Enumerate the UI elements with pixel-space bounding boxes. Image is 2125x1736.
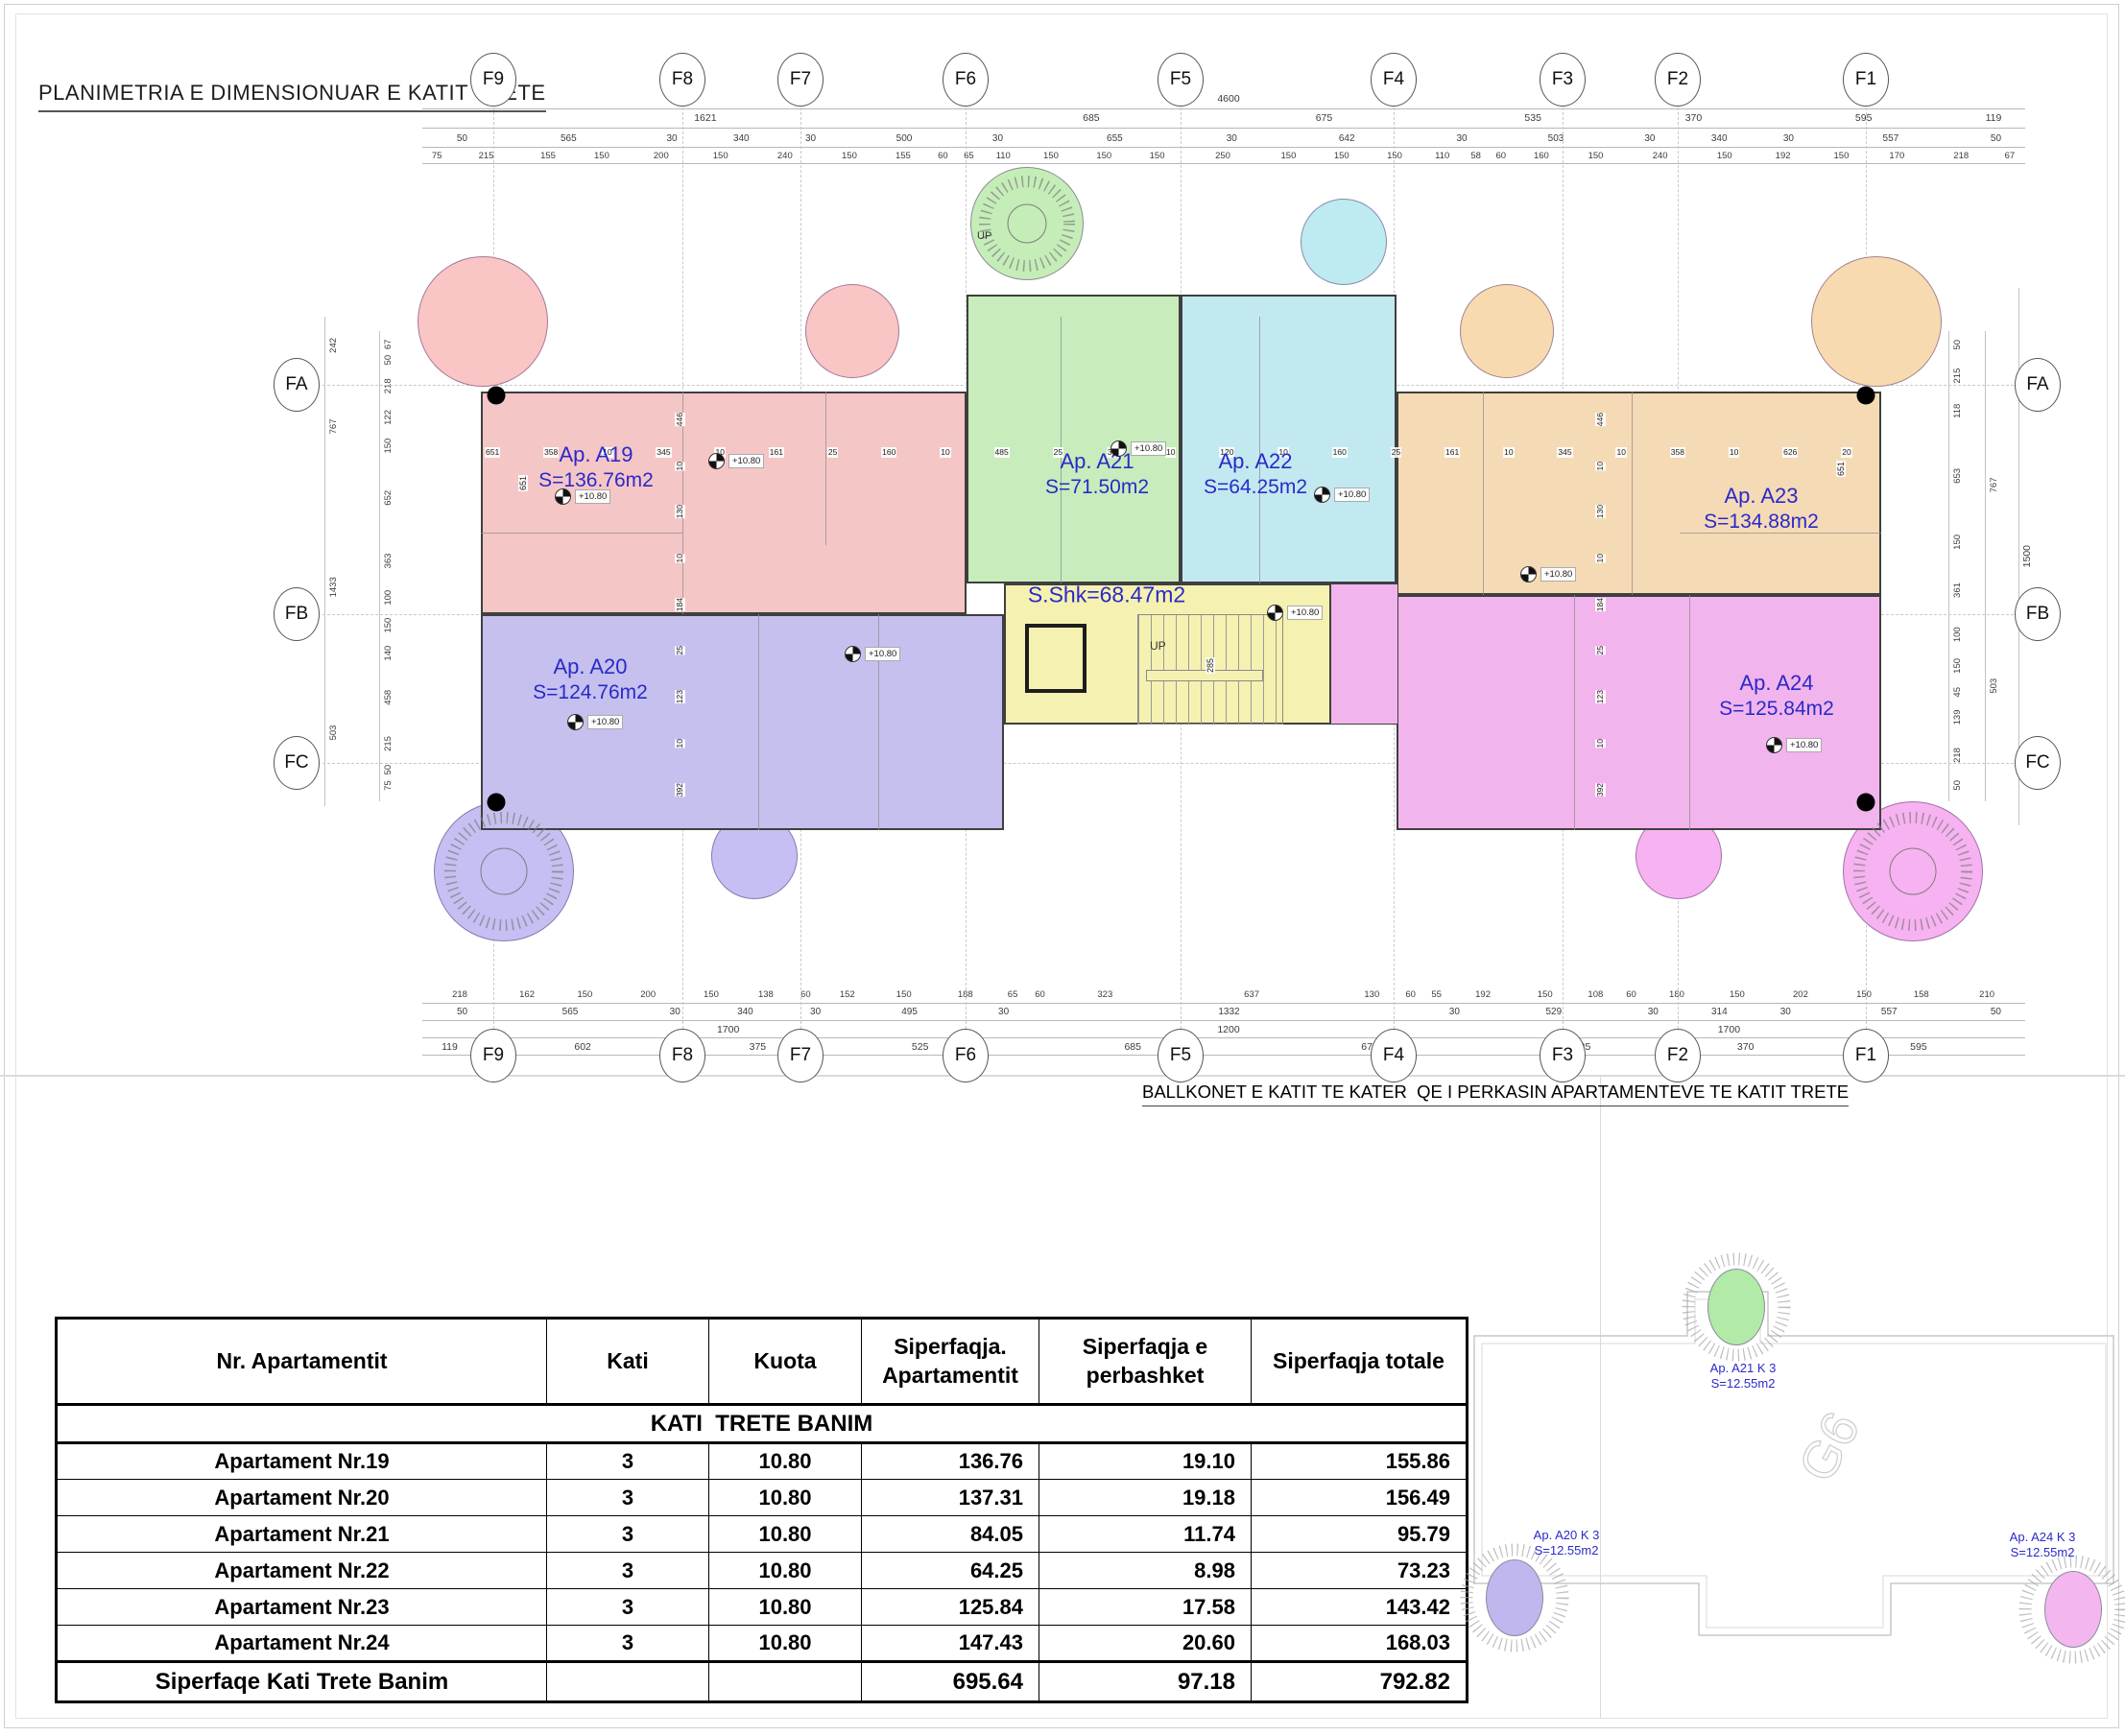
balcony-circle-a22 [1301,199,1387,285]
balcony-circle-a23-small [1460,284,1554,378]
dim-value: 67 [383,336,394,352]
grid-bubble-top-f6: F6 [943,53,989,107]
cell-area-shared: 17.58 [1039,1589,1252,1626]
drawing-sheet: { "sheet": { "title": "PLANIMETRIA E DIM… [0,0,2125,1736]
dim-value: 30 [1643,1007,1663,1017]
dim-value: 180 [1644,989,1708,1000]
dim-line [422,1020,2025,1021]
dim-value: 150 [557,989,613,1000]
cell-area-total: 95.79 [1252,1516,1468,1553]
dim-value: 1700 [437,1024,1019,1035]
dim-value: 200 [613,989,683,1000]
dim-value: 75 [383,777,394,795]
dim-value: 150 [1815,151,1868,161]
dim-value: 100 [1952,621,1963,649]
cell-area-apartment: 137.31 [862,1480,1039,1516]
grid-bubble-right-fc: FC [2015,736,2061,790]
cell-apartment-name: Apartament Nr.23 [57,1589,547,1626]
interior-wall [825,392,826,545]
dim-line [422,128,2025,129]
apartment-a24-area: S=125.84m2 [1719,697,1834,722]
apartment-a20-region [481,614,1004,830]
level-label: +10.80 [1131,441,1166,456]
dim-value: 150 [1315,151,1368,161]
dim-value: 370 [1626,112,1760,124]
dim-value: 184 [675,598,685,611]
dim-row-top-spans: 1621685675535370595119 [437,112,2020,124]
dim-value: 150 [383,431,394,461]
dim-value: 60 [1397,989,1424,1000]
apartment-a21-area: S=71.50m2 [1045,475,1149,500]
dim-value: 1500 [2021,545,2033,567]
mini-balcony-a24 [2044,1571,2102,1648]
floor-plan: 4600 1621685675535370595119 505653034030… [0,0,2125,1075]
total-row-label: Siperfaqe Kati Trete Banim [57,1662,547,1702]
grid-bubble-bottom-f6: F6 [943,1029,989,1082]
dim-value: 150 [1516,989,1573,1000]
cell-area-total: 156.49 [1252,1480,1468,1516]
apartment-a22-name: Ap. A22 [1204,448,1307,475]
dim-value: 240 [1622,151,1698,161]
grid-bubble-bottom-f3: F3 [1540,1029,1586,1082]
dim-value: 500 [821,133,988,144]
cell-apartment-name: Apartament Nr.20 [57,1480,547,1516]
dim-value: 565 [475,133,662,144]
cell-area-apartment: 136.76 [862,1443,1039,1480]
dim-value: 150 [694,151,747,161]
dim-value: 637 [1157,989,1347,1000]
grid-bubble-top-f2: F2 [1655,53,1701,107]
dim-value: 150 [823,151,875,161]
grid-bubble-right-fa: FA [2015,358,2061,412]
level-marker-icon [555,488,571,505]
dim-value: 30 [1445,1007,1465,1017]
dim-value: 503 [1471,133,1639,144]
col-header-siperfaqja-perbashket: Siperfaqja e perbashket [1039,1319,1252,1405]
dim-value: 50 [383,352,394,368]
dim-value: 218 [383,369,394,404]
cell-area-apartment: 125.84 [862,1589,1039,1626]
section-divider [0,1075,2125,1077]
dim-value: 557 [1796,1007,1983,1017]
dim-value: 108 [1573,989,1618,1000]
balcony-up-label: UP [977,230,991,242]
dim-value: 152 [819,989,875,1000]
level-marker-icon [1520,566,1537,583]
level-marker-icon [567,714,584,730]
grid-bubble-bottom-f1: F1 [1843,1029,1889,1082]
dim-value: 10 [1503,447,1514,458]
cell-kati: 3 [547,1480,709,1516]
dim-value: 675 [1208,112,1440,124]
grid-bubble-right-fb: FB [2015,587,2061,641]
dim-value: 767 [1989,365,1999,605]
level-label: +10.80 [587,715,623,729]
dim-value: 485 [994,447,1010,458]
dim-value: 458 [383,668,394,726]
dim-value: 138 [739,989,792,1000]
dim-value: 160 [1332,447,1348,458]
dim-value: 184 [1595,598,1606,611]
balcony-circle-a19-small [805,284,899,378]
apartment-a20-label: Ap. A20 S=124.76m2 [533,654,648,705]
dim-line [1948,331,1949,801]
dim-value: 150 [1078,151,1131,161]
dim-value: 215 [383,726,394,762]
interior-dim-chain-left: 44610130101842512310392 [675,413,685,797]
level-marker-icon [708,453,725,469]
dim-value: 30 [800,133,821,144]
apartment-a24-label: Ap. A24 S=125.84m2 [1719,670,1834,722]
elevator [1025,624,1086,693]
dim-value: 210 [1950,989,2023,1000]
dim-value: 446 [1595,413,1606,426]
apartment-a19-region [481,392,967,614]
dim-value: 392 [675,783,685,797]
level-marker-icon [845,646,861,662]
dim-value: 626 [1782,447,1798,458]
mini-balcony-a20-label: Ap. A20 K 3 S=12.55m2 [1534,1528,1600,1559]
dim-value: 150 [1709,989,1766,1000]
dim-value: 30 [1640,133,1660,144]
mini-balcony-a20 [1486,1559,1543,1636]
dim-value: 119 [1967,112,2020,124]
dim-value: 50 [383,762,394,777]
dim-value: 30 [805,1007,825,1017]
cell-area-shared: 20.60 [1039,1626,1252,1662]
dim-value: 155 [876,151,931,161]
dim-value: 150 [683,989,740,1000]
dim-value: 218 [1952,734,1963,777]
dim-value: 150 [1836,989,1893,1000]
level-label: +10.80 [728,454,764,468]
apartment-a23-label: Ap. A23 S=134.88m2 [1704,483,1819,535]
dim-value: 150 [1569,151,1622,161]
dim-value: 150 [1952,649,1963,683]
balcony-circle-a23-large [1811,256,1942,387]
dim-value: 242 [328,321,339,369]
dim-value: 139 [1952,701,1963,733]
col-header-apartment: Nr. Apartamentit [57,1319,547,1405]
dim-value: 653 [1952,426,1963,525]
mini-balcony-a24-area: S=12.55m2 [2010,1545,2076,1560]
dim-value: 140 [383,639,394,668]
apartment-a24-strip [1329,583,1398,725]
dim-value: 30 [1779,133,1799,144]
col-header-siperfaqja-apartamentit: Siperfaqja. Apartamentit [862,1319,1039,1405]
dim-value: 25 [1595,646,1606,654]
column-dot [488,387,506,405]
grid-bubble-bottom-f8: F8 [659,1029,705,1082]
level-label: +10.80 [865,647,900,661]
dim-value: 160 [1514,151,1569,161]
cell-area-apartment: 84.05 [862,1516,1039,1553]
dim-row-top-detail: 7521515515020015024015015560651101501501… [422,151,2023,161]
balcony-circle-a19-large [418,256,548,387]
grid-bubble-top-f3: F3 [1540,53,1586,107]
dim-value: 30 [993,1007,1014,1017]
apartment-a22-region [1181,295,1397,583]
dim-value: 65 [999,989,1027,1000]
dim-value: 55 [1423,989,1448,1000]
dim-value: 10 [675,462,685,470]
dim-value: 123 [675,690,685,703]
cell-kuota: 10.80 [709,1626,862,1662]
dim-value: 160 [881,447,896,458]
column-dot [1857,794,1875,812]
dim-value: 20 [1841,447,1851,458]
cell-area-apartment: 64.25 [862,1553,1039,1589]
dim-value: 685 [1014,1041,1253,1053]
dim-value: 1200 [1019,1024,1438,1035]
grid-bubble-bottom-f9: F9 [470,1029,516,1082]
interior-wall [758,614,759,830]
dim-value: 75 [422,151,451,161]
dim-value: 10 [1595,554,1606,562]
dim-value: 340 [685,1007,806,1017]
dim-value: 1332 [1014,1007,1445,1017]
dim-value: 10 [1165,447,1176,458]
apartment-a21-region [967,295,1181,583]
table-row: Apartament Nr.22310.8064.258.9873.23 [57,1553,1468,1589]
dim-value: 345 [1557,447,1572,458]
dim-value: 503 [328,692,339,773]
apartment-a20-area: S=124.76m2 [533,680,648,705]
dim-value: 122 [383,404,394,431]
cell-apartment-name: Apartament Nr.24 [57,1626,547,1662]
wall-dim-tag-left: 651 [518,475,528,491]
mini-balcony-a21-name: Ap. A21 K 3 [1710,1361,1777,1376]
dim-value: 4600 [1217,93,1239,105]
dim-value: 675 [1252,1041,1487,1053]
dim-value: 60 [1027,989,1054,1000]
grid-bubble-top-f5: F5 [1158,53,1204,107]
dim-value: 655 [1008,133,1222,144]
dim-col-right-mid: 767503 [1989,365,1999,768]
apartment-a23-area: S=134.88m2 [1704,510,1819,535]
cell-apartment-name: Apartament Nr.21 [57,1516,547,1553]
table-row: Apartament Nr.20310.80137.3119.18156.49 [57,1480,1468,1516]
dim-value: 685 [974,112,1208,124]
grid-bubble-left-fa: FA [274,358,320,412]
table-total-row: Siperfaqe Kati Trete Banim 695.64 97.18 … [57,1662,1468,1702]
cell-apartment-name: Apartament Nr.19 [57,1443,547,1480]
interior-wall [1574,595,1575,830]
cell-kati: 3 [547,1443,709,1480]
col-header-kuota: Kuota [709,1319,862,1405]
dim-value: 58 [1464,151,1489,161]
total-area-shared: 97.18 [1039,1662,1252,1702]
cell-area-shared: 19.18 [1039,1480,1252,1516]
stair-dim-tag: 285 [1206,657,1215,674]
dim-value: 162 [497,989,557,1000]
grid-bubble-bottom-f7: F7 [777,1029,824,1082]
dim-value: 503 [1989,605,1999,768]
dim-value: 446 [675,413,685,426]
dim-value: 529 [1465,1007,1643,1017]
dim-value: 50 [1952,776,1963,795]
dim-value: 25 [675,646,685,654]
dim-value: 10 [1615,447,1626,458]
apartment-a22-area: S=64.25m2 [1204,475,1307,500]
dim-line [422,1037,2025,1038]
column-dot [1857,387,1875,405]
dim-value: 123 [1595,690,1606,703]
dim-col-right-inner: 502151186531503611001504513921850 [1952,336,1963,795]
cell-area-total: 73.23 [1252,1553,1468,1589]
col-header-kati: Kati [547,1319,709,1405]
level-marker-icon [1766,737,1782,753]
dim-value: 50 [449,133,475,144]
cell-area-total: 155.86 [1252,1443,1468,1480]
dim-value: 150 [1024,151,1077,161]
dim-value: 30 [1776,1007,1796,1017]
dim-value: 250 [1183,151,1262,161]
dim-value: 200 [629,151,694,161]
dim-value: 314 [1663,1007,1776,1017]
dim-value: 345 [656,447,671,458]
grid-bubble-top-f9: F9 [470,53,516,107]
interior-wall [481,533,682,534]
interior-wall [1632,392,1633,595]
grid-bubble-bottom-f4: F4 [1371,1029,1417,1082]
dim-value: 30 [988,133,1008,144]
mini-balcony-a24-label: Ap. A24 K 3 S=12.55m2 [2010,1530,2076,1561]
interior-dim-chain-horizontal: 6513581034510161251601048525355101201016… [485,447,1852,458]
col-header-siperfaqja-totale: Siperfaqja totale [1252,1319,1468,1405]
grid-bubble-top-f1: F1 [1843,53,1889,107]
cell-kuota: 10.80 [709,1589,862,1626]
dim-line [1985,331,1986,801]
table-row: Apartament Nr.24310.80147.4320.60168.03 [57,1626,1468,1662]
dim-value: 130 [1347,989,1397,1000]
grid-bubble-left-fc: FC [274,736,320,790]
dim-value: 202 [1765,989,1835,1000]
cell-apartment-name: Apartament Nr.22 [57,1553,547,1589]
dim-value: 10 [675,739,685,748]
dim-value: 1433 [328,484,339,691]
cell-kuota: 10.80 [709,1480,862,1516]
level-label: +10.80 [1287,606,1323,620]
dim-value: 50 [1983,133,2009,144]
dim-value: 192 [1751,151,1814,161]
dim-line [324,317,325,806]
total-empty-kati [547,1662,709,1702]
cell-area-shared: 19.10 [1039,1443,1252,1480]
cell-kati: 3 [547,1553,709,1589]
dim-value: 652 [383,460,394,536]
dim-value: 218 [1926,151,1996,161]
dim-value: 170 [1868,151,1926,161]
level-label: +10.80 [575,489,610,504]
cell-kuota: 10.80 [709,1553,862,1589]
dim-col-left-outer: 2427671433503 [328,321,339,773]
dim-value: 130 [675,505,685,518]
dim-value: 150 [1368,151,1421,161]
mini-balcony-a24-name: Ap. A24 K 3 [2010,1530,2076,1545]
dim-line [422,147,2025,148]
grid-bubble-left-fb: FB [274,587,320,641]
cell-kuota: 10.80 [709,1516,862,1553]
dim-value: 595 [1760,112,1966,124]
mini-balcony-a21-label: Ap. A21 K 3 S=12.55m2 [1710,1361,1777,1392]
dim-value: 60 [1489,151,1514,161]
dim-value: 557 [1799,133,1983,144]
interior-wall [1689,595,1690,830]
total-area-total: 792.82 [1252,1662,1468,1702]
dim-value: 215 [451,151,520,161]
apartment-a22-label: Ap. A22 S=64.25m2 [1204,448,1307,500]
cell-area-shared: 8.98 [1039,1553,1252,1589]
dim-col-left-inner: 67502181221506523631001501404582155075 [383,336,394,795]
vertical-divider [1600,1077,1601,1719]
dim-value: 150 [875,989,932,1000]
cell-area-shared: 11.74 [1039,1516,1252,1553]
dim-value: 30 [1452,133,1472,144]
dim-value: 323 [1053,989,1157,1000]
mini-balcony-a20-name: Ap. A20 K 3 [1534,1528,1600,1543]
dim-value: 240 [747,151,823,161]
dim-value: 25 [1391,447,1401,458]
dim-value: 392 [1595,783,1606,797]
dim-value: 215 [1952,354,1963,397]
cell-kuota: 10.80 [709,1443,862,1480]
dim-value: 50 [449,1007,475,1017]
table-row: Apartament Nr.19310.80136.7619.10155.86 [57,1443,1468,1480]
interior-dim-chain-right: 44610130101842512310392 [1595,413,1606,797]
dim-line [422,108,2025,109]
dim-value: 361 [1952,559,1963,621]
dim-value: 25 [827,447,838,458]
mini-balcony-a20-area: S=12.55m2 [1534,1543,1600,1558]
dim-line [422,163,2025,164]
dim-value: 10 [940,447,950,458]
apartment-a20-name: Ap. A20 [533,654,648,680]
apartment-a23-name: Ap. A23 [1704,483,1819,510]
cell-area-total: 168.03 [1252,1626,1468,1662]
dim-value: 218 [422,989,497,1000]
dim-value: 110 [982,151,1024,161]
dim-value: 535 [1440,112,1627,124]
dim-value: 60 [930,151,955,161]
dim-value: 67 [1996,151,2023,161]
column-dot [488,794,506,812]
dim-value: 358 [1670,447,1685,458]
dim-value: 50 [1952,336,1963,354]
dim-value: 150 [1262,151,1315,161]
level-label: +10.80 [1334,488,1370,502]
total-empty-kuota [709,1662,862,1702]
dim-value: 155 [521,151,576,161]
level-marker-icon [1110,440,1127,457]
dim-value: 60 [1618,989,1645,1000]
dim-value: 10 [1595,462,1606,470]
stair-core-label: S.Shk=68.47m2 [1028,583,1185,608]
dim-value: 30 [662,133,682,144]
grid-bubble-bottom-f5: F5 [1158,1029,1204,1082]
wall-dim-tag-right: 651 [1836,461,1846,477]
dim-value: 10 [1729,447,1739,458]
dim-value: 150 [1952,525,1963,559]
dim-value: 100 [383,585,394,610]
apartment-area-table: Nr. Apartamentit Kati Kuota Siperfaqja. … [55,1317,1468,1703]
dim-value: 119 [422,1041,477,1053]
apartment-a19-name: Ap. A19 [538,441,654,468]
balcony-circle-a21-spiral [970,167,1084,280]
dim-value: 150 [575,151,628,161]
interior-wall [1483,392,1484,595]
dim-value: 45 [1952,683,1963,702]
